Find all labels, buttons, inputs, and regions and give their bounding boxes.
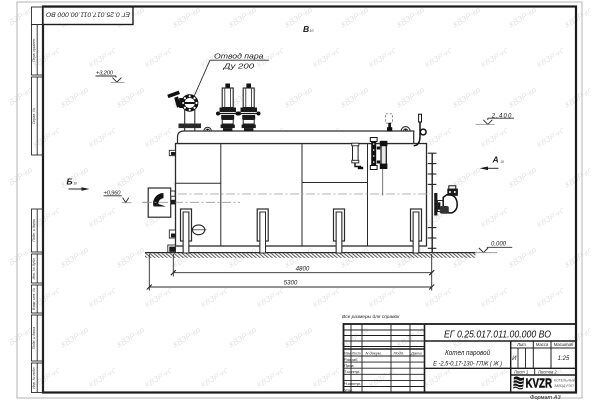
svg-text:Котел паровой: Котел паровой: [445, 349, 490, 357]
svg-text:Н.контр.: Н.контр.: [344, 381, 361, 386]
svg-text:Масштаб: Масштаб: [554, 342, 574, 347]
svg-text:ЗАВОД РЭП: ЗАВОД РЭП: [554, 384, 574, 388]
svg-text:Ду 200: Ду 200: [222, 61, 255, 70]
svg-text:Лист: Лист: [351, 350, 361, 355]
svg-text:KVZR: KVZR: [526, 375, 553, 390]
svg-text:ЕГ 0.25.017.011.00.000 ВО: ЕГ 0.25.017.011.00.000 ВО: [46, 11, 130, 18]
svg-text:Лист 1: Лист 1: [513, 369, 528, 374]
svg-text:И: И: [512, 356, 517, 362]
svg-text:Инв. № подл.: Инв. № подл.: [32, 367, 36, 389]
svg-text:Е -2,5-0,17-130- ГЛЖ ( Ж ): Е -2,5-0,17-130- ГЛЖ ( Ж ): [433, 360, 502, 367]
svg-text:Разраб.: Разраб.: [344, 357, 358, 362]
svg-text:Подп.: Подп.: [394, 350, 405, 355]
svg-text:4800: 4800: [296, 265, 310, 272]
svg-text:Справ. №: Справ. №: [32, 108, 36, 124]
svg-text:Утв.: Утв.: [344, 387, 353, 392]
svg-text:5300: 5300: [284, 280, 298, 287]
svg-text:10: 10: [310, 29, 314, 33]
svg-text:Дата: Дата: [410, 350, 422, 355]
svg-text:Подп. и дата: Подп. и дата: [32, 219, 36, 242]
svg-text:Формат А3: Формат А3: [530, 395, 561, 400]
svg-text:Изм: Изм: [344, 350, 351, 355]
svg-text:10: 10: [73, 182, 77, 186]
svg-text:А: А: [492, 155, 499, 165]
svg-text:Б: Б: [67, 177, 73, 187]
svg-text:N докум.: N докум.: [366, 350, 382, 355]
svg-text:В: В: [303, 24, 309, 34]
svg-text:Т.контр.: Т.контр.: [344, 369, 360, 374]
svg-text:Все размеры для справок: Все размеры для справок: [342, 314, 400, 320]
svg-text:Подп. и дата: Подп. и дата: [32, 327, 36, 350]
svg-text:Масса: Масса: [536, 342, 549, 347]
svg-text:0,000: 0,000: [491, 241, 507, 247]
svg-text:10: 10: [500, 160, 504, 164]
svg-text:Перв. примен.: Перв. примен.: [32, 38, 36, 62]
svg-text:ЕГ 0.25.017.011.00.000 ВО: ЕГ 0.25.017.011.00.000 ВО: [444, 329, 551, 341]
svg-text:КОТЕЛЬНЫЙ: КОТЕЛЬНЫЙ: [554, 379, 576, 383]
svg-text:Отвод пара: Отвод пара: [214, 51, 264, 60]
svg-text:Лит.: Лит.: [516, 342, 527, 347]
svg-text:Взам. инв. №: Взам. инв. №: [32, 288, 36, 310]
svg-text:Пров.: Пров.: [344, 363, 355, 368]
svg-text:1:25: 1:25: [558, 356, 570, 362]
svg-text:Листов 2: Листов 2: [537, 369, 557, 374]
svg-text:Инв. № дубл.: Инв. № дубл.: [32, 257, 36, 279]
